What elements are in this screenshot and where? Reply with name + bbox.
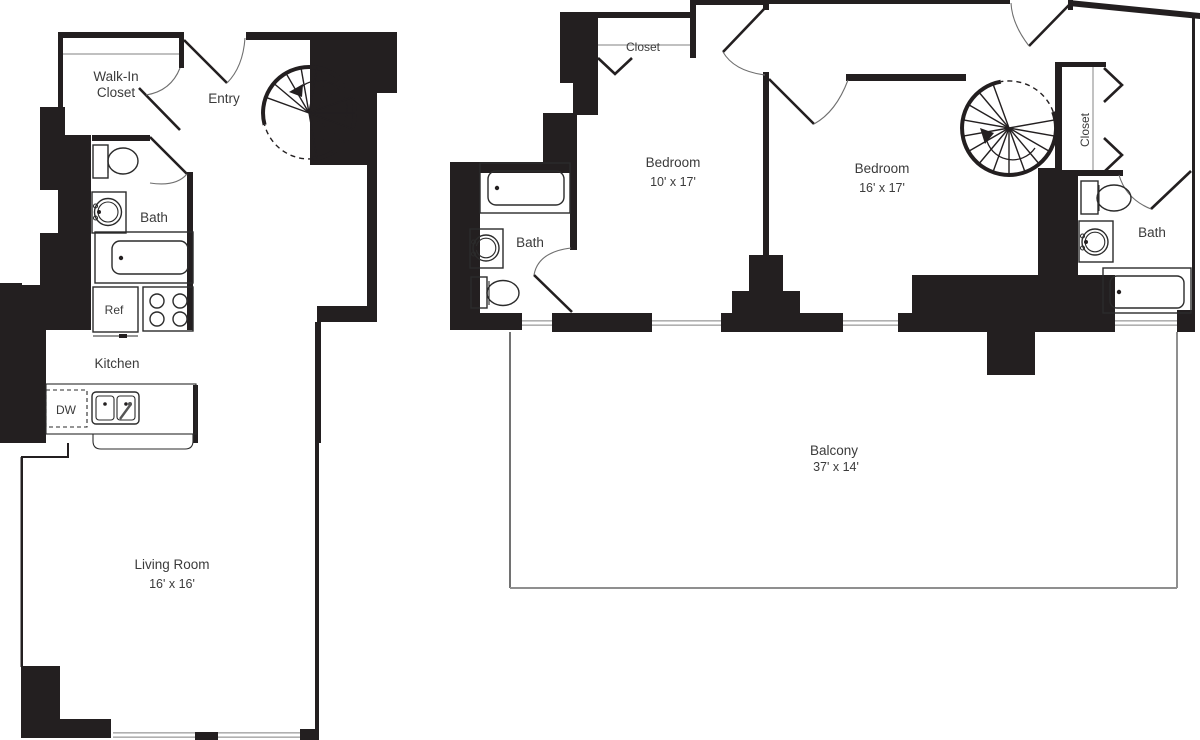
upper-bath-left-label: Bath xyxy=(516,235,544,250)
lower-bath-label: Bath xyxy=(140,210,168,225)
walk-in-closet-door xyxy=(139,68,180,130)
living-room-dimensions: 16' x 16' xyxy=(149,577,195,591)
bedroom-large-entry-door xyxy=(1011,3,1070,46)
floorplan-svg: Walk-In Closet Entry Bath Ref Kitchen DW… xyxy=(0,0,1200,740)
bathtub-upper-right xyxy=(1103,268,1191,313)
refrigerator-label: Ref xyxy=(105,303,124,317)
floorplan-canvas: Walk-In Closet Entry Bath Ref Kitchen DW… xyxy=(0,0,1200,740)
stove xyxy=(143,287,193,331)
upper-bath-right-label: Bath xyxy=(1138,225,1166,240)
upper-level-plan: Closet Bedroom 10' x 17' Bedroom 16' x 1… xyxy=(450,0,1200,588)
upper-bath-left-door xyxy=(534,248,572,312)
upper-closet-label: Closet xyxy=(626,40,661,54)
sink-upper-right xyxy=(1079,221,1113,262)
kitchen-sink xyxy=(92,392,139,424)
entry-label: Entry xyxy=(208,91,240,106)
lower-bath-door xyxy=(150,137,187,184)
spiral-staircase-upper xyxy=(962,81,1056,175)
stair-tread-line xyxy=(1009,128,1039,164)
bedroom-small-entry-door xyxy=(723,8,765,75)
lower-wall-segments xyxy=(0,32,397,740)
bedroom-connecting-door xyxy=(769,79,848,124)
toilet-lower xyxy=(93,145,138,178)
right-closet-bifold-doors xyxy=(1104,68,1122,172)
stair-tread-line xyxy=(979,92,1009,128)
living-room-label: Living Room xyxy=(134,557,209,572)
stair-tread-line xyxy=(1009,120,1055,128)
kitchen-label: Kitchen xyxy=(94,356,139,371)
stair-tread-line xyxy=(993,84,1009,128)
bathtub-lower xyxy=(95,232,193,283)
balcony-dimensions: 37' x 14' xyxy=(813,460,859,474)
bedroom-large-dimensions: 16' x 17' xyxy=(859,181,905,195)
walk-in-closet-label-line1: Walk-In xyxy=(93,69,138,84)
entry-door xyxy=(184,38,245,83)
sink-lower xyxy=(92,192,126,233)
spiral-staircase-lower xyxy=(263,67,355,159)
upper-wall-segments xyxy=(450,0,1200,375)
dishwasher-label: DW xyxy=(56,403,77,417)
stair-tread-line xyxy=(1009,128,1025,172)
right-closet-label: Closet xyxy=(1078,112,1092,147)
bedroom-large-label: Bedroom xyxy=(855,161,910,176)
stair-tread-line xyxy=(266,97,309,113)
upper-closet-bifold-door xyxy=(598,58,632,74)
bedroom-small-label: Bedroom xyxy=(646,155,701,170)
stair-tread-line xyxy=(274,83,309,113)
bedroom-small-dimensions: 10' x 17' xyxy=(650,175,696,189)
walk-in-closet-label-line2: Closet xyxy=(97,85,136,100)
balcony-label: Balcony xyxy=(810,443,858,458)
lower-level-plan: Walk-In Closet Entry Bath Ref Kitchen DW… xyxy=(0,32,397,740)
stair-tread-line xyxy=(993,128,1009,172)
